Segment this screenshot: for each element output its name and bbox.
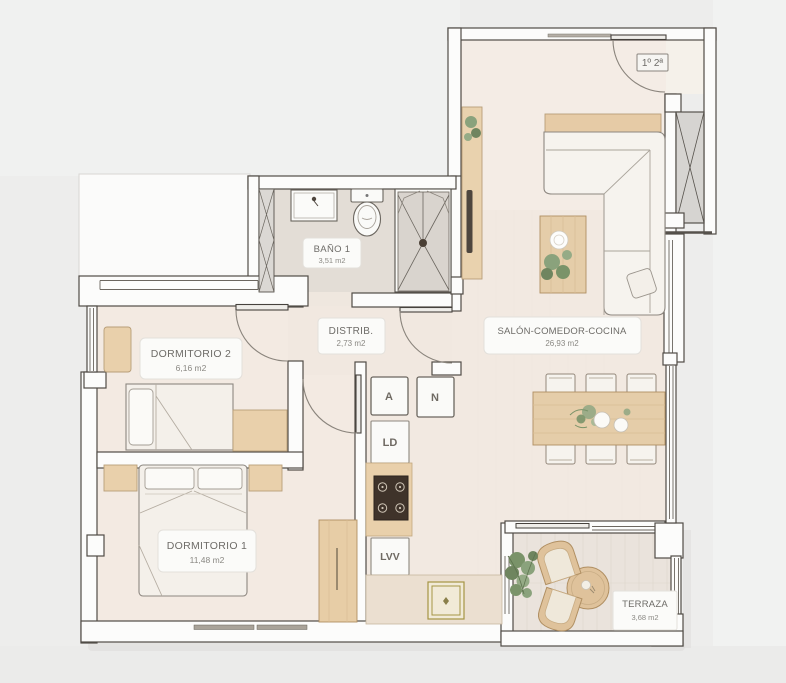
- svg-text:3,68 m2: 3,68 m2: [631, 613, 658, 622]
- svg-text:2,73 m2: 2,73 m2: [337, 339, 366, 348]
- svg-text:N: N: [431, 392, 439, 404]
- svg-text:SALÓN-COMEDOR-COCINA: SALÓN-COMEDOR-COCINA: [497, 326, 627, 337]
- svg-text:LVV: LVV: [380, 551, 400, 563]
- svg-text:DORMITORIO 1: DORMITORIO 1: [167, 540, 247, 552]
- svg-text:BAÑO 1: BAÑO 1: [314, 244, 351, 255]
- svg-text:A: A: [385, 391, 393, 403]
- svg-text:6,16 m2: 6,16 m2: [176, 363, 207, 373]
- svg-text:DISTRIB.: DISTRIB.: [329, 326, 374, 337]
- svg-text:TERRAZA: TERRAZA: [622, 599, 668, 610]
- svg-text:3,51 m2: 3,51 m2: [318, 256, 345, 265]
- svg-text:26,93 m2: 26,93 m2: [545, 339, 579, 348]
- svg-text:DORMITORIO 2: DORMITORIO 2: [151, 348, 231, 360]
- svg-text:LD: LD: [383, 437, 398, 449]
- svg-text:1º 2ª: 1º 2ª: [642, 58, 664, 69]
- svg-text:11,48 m2: 11,48 m2: [190, 555, 225, 565]
